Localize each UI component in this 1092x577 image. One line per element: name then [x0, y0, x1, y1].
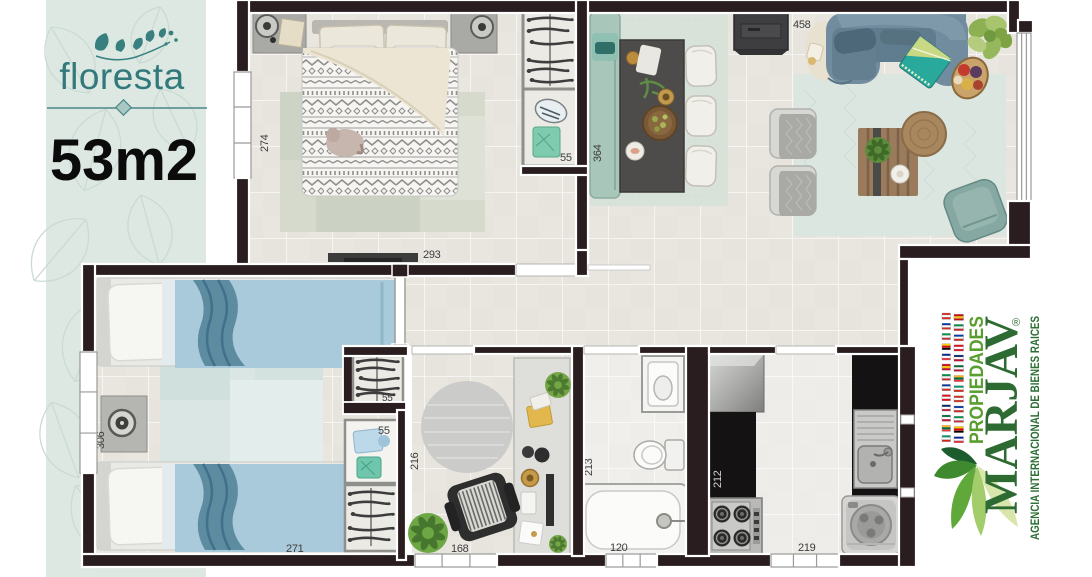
svg-text:274: 274 [259, 134, 271, 152]
svg-text:55: 55 [378, 425, 390, 437]
svg-text:MARJAV: MARJAV [975, 316, 1028, 514]
svg-text:AGENCIA INTERNACIONAL DE BIENE: AGENCIA INTERNACIONAL DE BIENES RAICES [1028, 316, 1042, 540]
svg-text:364: 364 [592, 144, 604, 162]
svg-text:53m2: 53m2 [50, 128, 198, 193]
svg-text:458: 458 [793, 19, 811, 31]
svg-text:168: 168 [451, 543, 469, 555]
svg-text:floresta: floresta [59, 56, 184, 97]
svg-text:®: ® [1012, 317, 1020, 329]
svg-text:293: 293 [423, 249, 441, 261]
svg-text:219: 219 [798, 542, 816, 554]
svg-text:120: 120 [610, 542, 628, 554]
svg-text:55: 55 [560, 152, 572, 164]
svg-text:212: 212 [712, 470, 724, 488]
svg-text:216: 216 [409, 452, 421, 470]
